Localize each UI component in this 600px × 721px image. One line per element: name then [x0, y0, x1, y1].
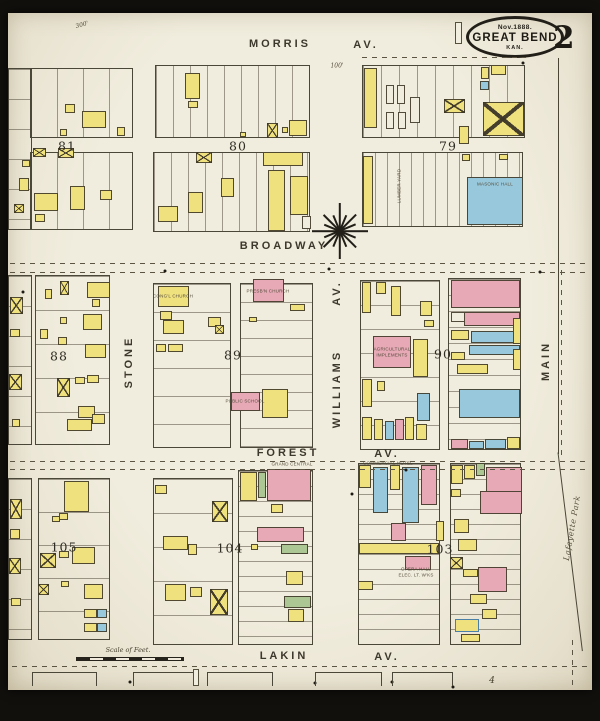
cut-block-outline: [207, 672, 273, 686]
building: [464, 312, 520, 326]
paper-patch: [193, 669, 199, 686]
building: [374, 419, 383, 440]
building: [160, 311, 172, 320]
street-dash: [10, 469, 588, 470]
building: [491, 65, 506, 75]
building: [64, 481, 89, 512]
building: [413, 339, 428, 377]
building: [451, 489, 461, 497]
building: [271, 504, 283, 513]
street-dash: [572, 640, 573, 688]
map-canvas: Nov.1888. GREAT BEND KAN. 2 MORRISAV.BRO…: [0, 0, 600, 721]
street-label: BROADWAY: [240, 240, 328, 252]
street-dash: [10, 461, 588, 462]
street-dash: [10, 263, 590, 264]
building: [87, 375, 99, 383]
street-label: MORRIS: [249, 38, 311, 50]
building: [45, 289, 52, 299]
building: [240, 132, 246, 137]
street-label: AV.: [331, 280, 343, 306]
map-label: Scale of Feet.: [106, 646, 151, 654]
building: [457, 364, 488, 374]
building-stable: [57, 378, 70, 397]
building-stable: [10, 499, 22, 519]
building: [455, 619, 479, 632]
survey-dot: [129, 681, 132, 684]
photographed-map-sheet: Nov.1888. GREAT BEND KAN. 2 MORRISAV.BRO…: [0, 0, 600, 721]
building: [362, 379, 372, 407]
building-stable: [196, 152, 212, 163]
street-dash: [12, 666, 590, 667]
building: [60, 317, 67, 324]
building-label: GRAND CENTRAL: [271, 462, 312, 467]
building: [451, 465, 463, 484]
building: [284, 596, 311, 608]
building: [188, 101, 198, 108]
sheet-number: 2: [553, 20, 575, 56]
building: [185, 73, 200, 99]
badge-city: GREAT BEND: [472, 32, 557, 44]
street-label: WILLIAMS: [331, 350, 343, 428]
block-number: 80: [229, 139, 247, 154]
street-label: AV.: [374, 448, 400, 460]
building: [40, 329, 48, 339]
building: [92, 299, 100, 307]
building-stable: [60, 281, 69, 295]
building: [163, 320, 184, 334]
building-stable: [444, 99, 465, 113]
park-line: [558, 452, 583, 651]
scale-bar: [76, 657, 184, 661]
building: [263, 152, 303, 166]
building: [421, 465, 437, 505]
building: [52, 516, 60, 522]
building: [58, 337, 67, 345]
building: [188, 192, 203, 213]
building: [373, 467, 388, 513]
building: [10, 529, 20, 539]
building: [499, 154, 508, 160]
building-stable: [9, 374, 22, 390]
building: [249, 317, 257, 322]
building: [481, 67, 489, 79]
building: [83, 314, 102, 330]
building-stable: [10, 297, 23, 314]
building: [480, 491, 522, 514]
street-label: STONE: [123, 336, 135, 389]
map-label: 300': [75, 20, 89, 30]
building: [424, 320, 434, 327]
building: [482, 609, 497, 619]
building: [451, 352, 465, 360]
building: [451, 330, 469, 340]
building: [290, 176, 308, 215]
building: [391, 286, 401, 316]
building: [19, 178, 29, 191]
survey-dot: [22, 291, 25, 294]
building: [420, 301, 432, 316]
building: [397, 85, 405, 104]
building: [155, 485, 167, 494]
building-label: PRESB'N CHURCH: [247, 289, 290, 294]
building: [480, 81, 489, 90]
building: [417, 393, 430, 421]
building: [190, 587, 202, 597]
building-stable: [38, 584, 49, 595]
building: [240, 472, 257, 501]
block-number: 89: [224, 348, 242, 363]
building: [262, 389, 288, 418]
block-outline: [153, 283, 231, 448]
building: [34, 193, 58, 211]
building: [117, 127, 125, 136]
building: [459, 126, 469, 144]
building: [22, 160, 30, 167]
building: [386, 112, 394, 129]
building: [268, 170, 285, 231]
building: [377, 381, 385, 391]
building: [513, 318, 521, 344]
building: [436, 521, 444, 541]
street-label: MAIN: [540, 341, 552, 381]
survey-dot: [522, 62, 525, 65]
building: [290, 304, 305, 311]
building: [286, 571, 303, 585]
building: [251, 544, 258, 550]
building-label: AGRICULTURAL: [374, 347, 411, 352]
title-badge: Nov.1888. GREAT BEND KAN.: [466, 16, 564, 58]
building: [386, 85, 394, 104]
building-stable: [215, 325, 224, 334]
street-label: AV.: [374, 651, 400, 663]
building-stable: [40, 553, 56, 568]
building: [85, 344, 106, 358]
building: [12, 419, 20, 427]
building: [267, 469, 311, 501]
building-stable: [483, 102, 524, 136]
building: [281, 544, 308, 554]
building-stable: [9, 558, 21, 574]
building-label: CONG'L CHURCH: [153, 294, 193, 299]
building: [459, 389, 520, 418]
building: [84, 623, 97, 632]
building: [458, 539, 477, 551]
building: [75, 377, 85, 384]
building: [463, 569, 478, 577]
building: [513, 349, 521, 370]
building: [461, 634, 480, 642]
building: [59, 513, 68, 520]
street-label: FOREST: [257, 447, 320, 459]
building: [464, 465, 475, 479]
building: [163, 536, 188, 550]
building-stable: [33, 148, 46, 157]
building: [391, 523, 406, 541]
building: [451, 439, 468, 449]
building: [168, 344, 183, 352]
building: [282, 127, 288, 133]
building-stable: [212, 501, 228, 522]
building: [165, 584, 186, 601]
block-number: 103: [427, 542, 454, 557]
building: [405, 417, 414, 440]
map-label: 100': [330, 63, 343, 70]
building: [507, 437, 520, 449]
block-number: 104: [217, 541, 244, 556]
building: [10, 329, 20, 337]
building: [60, 129, 67, 136]
building: [485, 439, 506, 449]
street-line: [558, 58, 559, 454]
building-label: IMPLEMENTS: [376, 353, 407, 358]
paper-patch: [455, 22, 462, 44]
building: [462, 154, 470, 161]
building: [288, 609, 304, 622]
survey-dot: [351, 493, 354, 496]
building-stable: [210, 589, 228, 615]
cut-block-outline: [392, 672, 453, 686]
building: [11, 598, 21, 606]
building: [289, 120, 307, 136]
building: [362, 417, 372, 440]
building: [376, 282, 386, 294]
building: [258, 472, 266, 498]
building: [87, 282, 110, 298]
building-stable: [267, 123, 278, 138]
building: [257, 527, 304, 542]
building: [451, 280, 520, 308]
cut-block-outline: [133, 672, 197, 686]
building: [35, 214, 45, 222]
building: [156, 344, 166, 352]
survey-dot: [539, 271, 542, 274]
street-dash: [561, 270, 562, 460]
building: [395, 419, 404, 440]
building: [358, 581, 373, 590]
building-label: MASONIC HALL: [477, 182, 513, 187]
street-label: LAKIN: [260, 650, 309, 662]
building: [67, 419, 92, 431]
survey-dot: [164, 270, 167, 273]
building: [61, 581, 69, 587]
building: [84, 584, 103, 599]
cut-block-outline: [315, 672, 382, 686]
building: [469, 441, 484, 449]
building: [97, 623, 107, 632]
building: [82, 111, 106, 128]
street-label: AV.: [353, 39, 379, 51]
building: [97, 609, 107, 618]
badge-date: Nov.1888.: [498, 24, 532, 31]
building: [84, 609, 97, 618]
building-stable: [14, 204, 24, 213]
building-label: ELEC. LT. W'KS: [398, 573, 433, 578]
building: [221, 178, 234, 197]
building: [398, 112, 406, 129]
survey-dot: [405, 469, 408, 472]
building: [70, 186, 85, 210]
building: [188, 544, 197, 555]
building: [470, 594, 487, 604]
building: [410, 97, 420, 123]
building: [362, 282, 371, 313]
block-number: 105: [51, 540, 78, 555]
building: [364, 68, 377, 128]
building-label: PUBLIC SCHOOL: [225, 399, 264, 404]
building: [402, 467, 419, 523]
badge-state: KAN.: [506, 45, 523, 51]
building-label: OPERA HALL: [401, 567, 431, 572]
street-dash: [10, 272, 590, 273]
building: [478, 567, 507, 592]
cut-block-outline: [32, 672, 97, 686]
building: [158, 206, 178, 222]
building: [100, 190, 112, 200]
building: [416, 424, 427, 440]
building-stable: [450, 557, 463, 569]
building: [302, 216, 311, 229]
block-number: 79: [439, 139, 457, 154]
map-label: 4: [489, 676, 495, 686]
building: [363, 156, 373, 224]
block-number: 81: [58, 139, 76, 154]
building: [454, 519, 469, 533]
building: [92, 414, 105, 424]
block-number: 90: [434, 347, 452, 362]
building-label: LUMBER YARD: [397, 169, 402, 203]
building: [65, 104, 75, 113]
street-dash: [362, 57, 526, 58]
survey-dot: [328, 268, 331, 271]
block-number: 88: [50, 349, 68, 364]
building: [385, 421, 394, 440]
